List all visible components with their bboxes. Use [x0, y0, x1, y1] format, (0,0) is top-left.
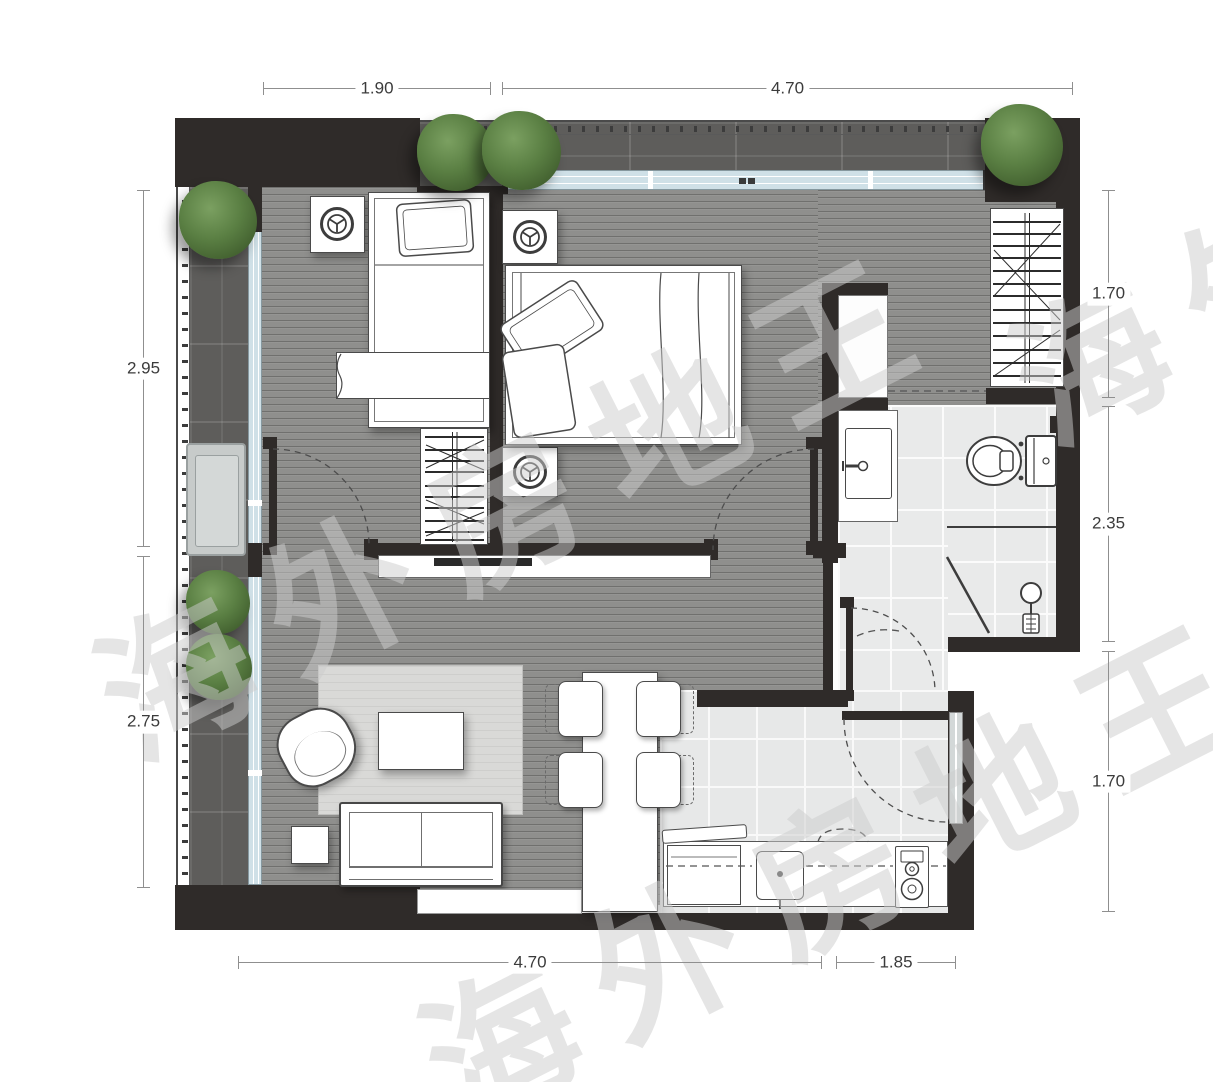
plant-icon	[179, 181, 257, 259]
single-bed-detail	[337, 199, 483, 398]
dimension-bottom-1: 4.70	[238, 956, 822, 969]
plant-icon	[482, 111, 561, 190]
toilet	[967, 436, 1056, 486]
door-arc-entrance	[844, 719, 947, 822]
dimension-right-3: 1.70	[1102, 651, 1115, 912]
floor-plan: 海外房地王 海外房地王 海外房地王 1.90 4.70 2.95 2.75 1.…	[0, 0, 1213, 1082]
lamp-icon	[322, 209, 353, 240]
door-arc-bathroom	[851, 608, 935, 692]
plant-icon	[981, 104, 1063, 186]
plant-icon	[186, 570, 250, 634]
door-arc-master-bedroom	[713, 449, 814, 550]
lamp-icon	[515, 457, 546, 488]
dimension-bottom-2: 1.85	[836, 956, 956, 969]
dimension-right-1: 1.70	[1102, 190, 1115, 398]
dimension-left-1: 2.95	[137, 190, 150, 547]
dimension-top-2: 4.70	[502, 82, 1073, 95]
double-bed-detail	[498, 273, 729, 438]
door-swing-arcs	[273, 449, 947, 822]
dimension-top-1: 1.90	[263, 82, 491, 95]
dashed-lines	[666, 391, 986, 866]
sink-faucet-icon	[777, 871, 783, 909]
dimension-right-2: 2.35	[1102, 406, 1115, 642]
shower-head-icon	[1021, 583, 1041, 633]
shower-door-dashed	[857, 630, 899, 636]
lamp-icon	[515, 222, 546, 253]
wardrobe-hangers-master	[993, 213, 1061, 383]
wardrobe-hangers-bedroom2	[425, 432, 484, 542]
door-arc-bedroom2	[273, 449, 369, 545]
blanket-edge	[337, 354, 342, 398]
dimension-left-2: 2.75	[137, 556, 150, 888]
vanity-faucet-icon	[843, 461, 868, 471]
cooktop-burners	[901, 851, 923, 900]
plant-icon	[186, 634, 252, 700]
wall-fixture-dashed	[818, 829, 868, 842]
